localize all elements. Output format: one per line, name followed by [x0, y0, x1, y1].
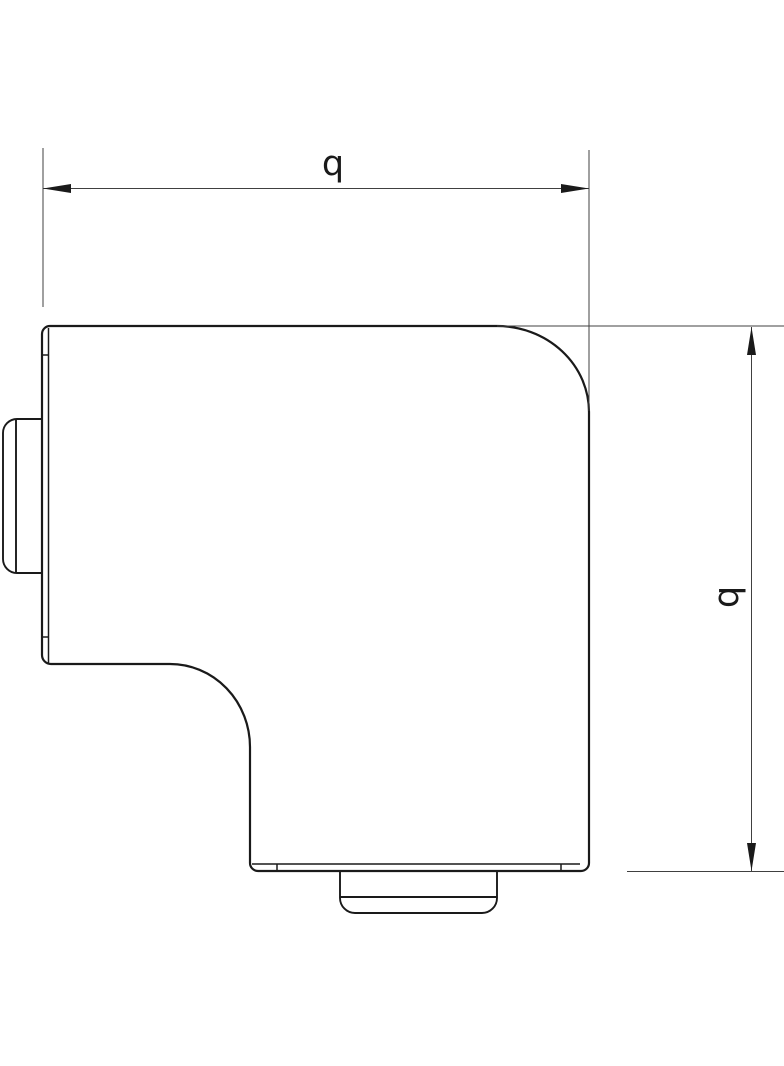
part-outline-group [3, 326, 589, 913]
height-dim-label: b [710, 586, 750, 608]
flat-angle-technical-drawing: b b [0, 0, 784, 1066]
left-connector-stub-outline [3, 419, 42, 573]
height-dim-arrow-bottom [747, 843, 756, 871]
body-outline [42, 326, 589, 871]
bottom-connector-stub-outline [340, 871, 497, 913]
height-dimension-group: b [497, 326, 784, 872]
width-dim-arrow-left [43, 184, 71, 193]
drawing-canvas: b b [0, 0, 784, 1066]
width-dim-label: b [322, 147, 344, 187]
height-dim-arrow-top [747, 327, 756, 355]
width-dim-arrow-right [561, 184, 589, 193]
seam-lines-group [42, 328, 580, 871]
width-dimension-group: b [43, 147, 589, 411]
